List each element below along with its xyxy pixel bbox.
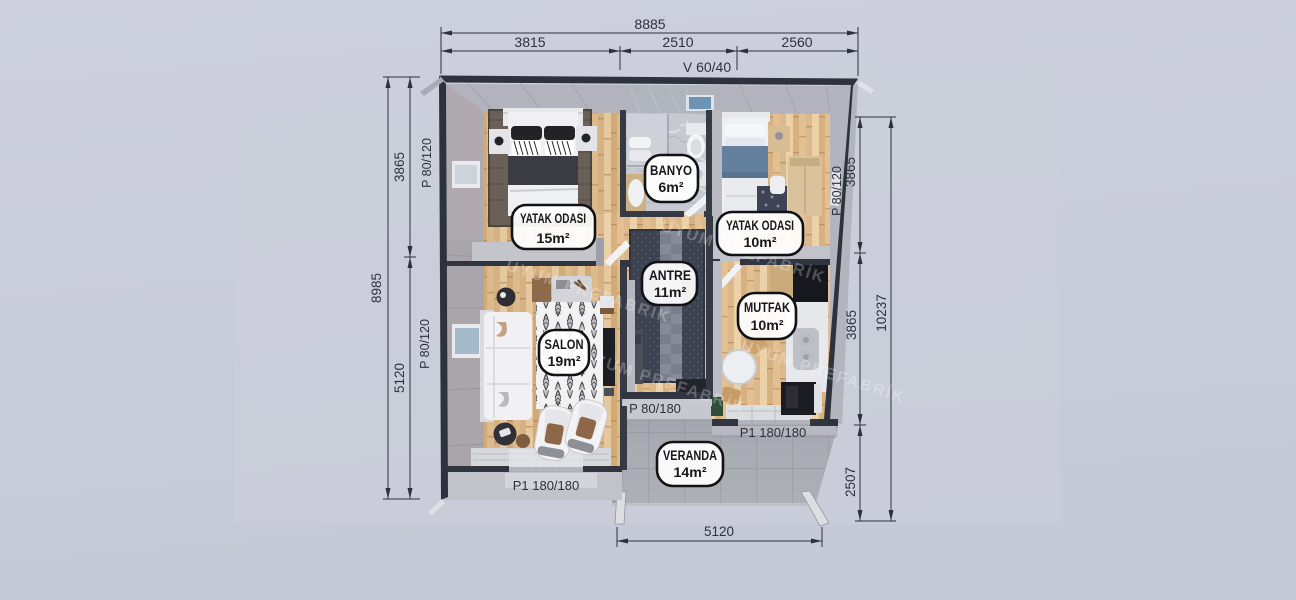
- svg-text:2510: 2510: [662, 34, 693, 50]
- svg-text:3815: 3815: [514, 34, 545, 50]
- svg-text:10237: 10237: [874, 294, 889, 332]
- svg-text:5120: 5120: [392, 363, 407, 393]
- svg-text:8985: 8985: [369, 273, 384, 303]
- svg-text:YATAK ODASI: YATAK ODASI: [520, 211, 586, 226]
- svg-text:ANTRE: ANTRE: [649, 268, 691, 283]
- svg-text:6m²: 6m²: [658, 180, 684, 196]
- svg-text:5120: 5120: [704, 524, 734, 539]
- svg-text:P1 180/180: P1 180/180: [513, 478, 580, 493]
- svg-text:19m²: 19m²: [547, 354, 580, 370]
- svg-text:14m²: 14m²: [673, 465, 706, 481]
- svg-text:V 60/40: V 60/40: [683, 59, 731, 75]
- svg-text:10m²: 10m²: [750, 318, 783, 334]
- svg-text:SALON: SALON: [545, 337, 584, 352]
- svg-text:2507: 2507: [843, 467, 858, 497]
- svg-text:10m²: 10m²: [743, 235, 776, 251]
- svg-text:15m²: 15m²: [536, 231, 569, 247]
- svg-text:P 80/180: P 80/180: [629, 401, 681, 416]
- svg-text:YATAK ODASI: YATAK ODASI: [726, 218, 794, 233]
- svg-text:BANYO: BANYO: [650, 163, 692, 178]
- svg-text:P1 180/180: P1 180/180: [740, 425, 807, 440]
- svg-text:8885: 8885: [634, 16, 665, 32]
- svg-text:2560: 2560: [781, 34, 812, 50]
- svg-text:3865: 3865: [844, 310, 859, 340]
- svg-text:VERANDA: VERANDA: [663, 448, 717, 463]
- svg-text:P 80/120: P 80/120: [418, 319, 432, 369]
- svg-text:11m²: 11m²: [654, 285, 687, 301]
- svg-text:3865: 3865: [392, 152, 407, 182]
- svg-text:MUTFAK: MUTFAK: [744, 300, 790, 315]
- svg-text:P 80/120: P 80/120: [830, 166, 844, 216]
- svg-text:P 80/120: P 80/120: [420, 138, 434, 188]
- svg-text:3865: 3865: [843, 157, 858, 187]
